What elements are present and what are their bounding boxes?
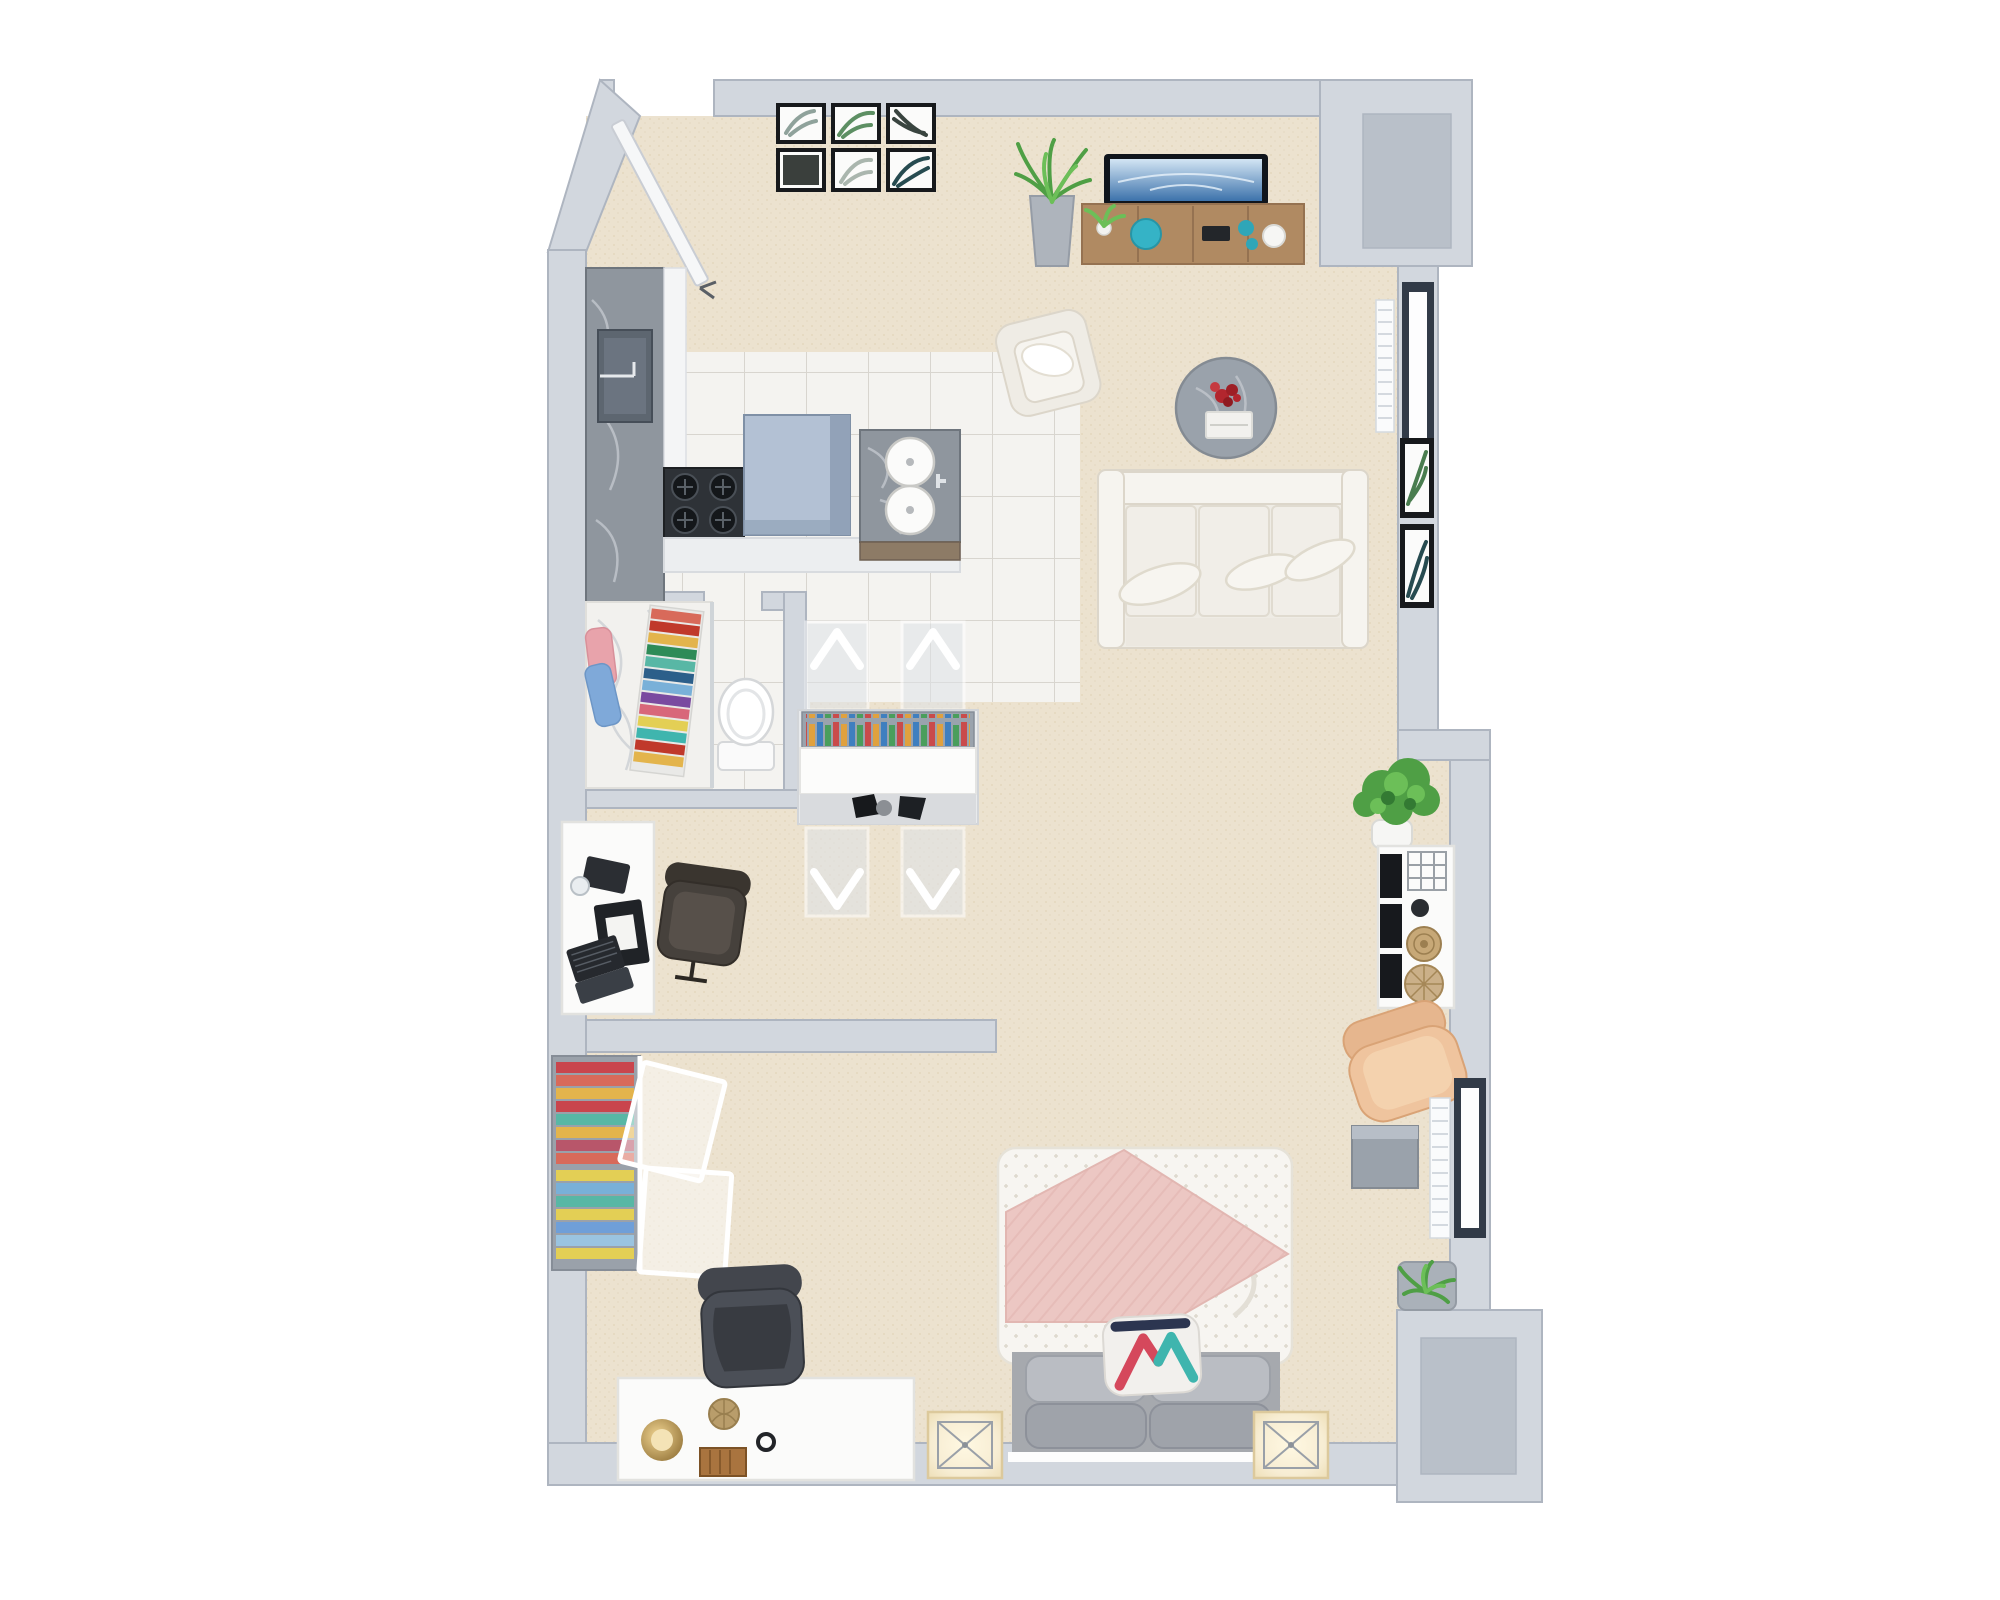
- kitchen-island[interactable]: [744, 415, 850, 535]
- dining-chair[interactable]: [902, 828, 964, 916]
- table-top: [800, 748, 976, 794]
- upper-window: [1402, 282, 1434, 452]
- glass-cup: [571, 877, 589, 895]
- dining-chair[interactable]: [902, 622, 964, 710]
- floor-plan: [0, 0, 2000, 1600]
- black-shelf-fronts: [1380, 854, 1402, 998]
- bed-baseboard: [1008, 1452, 1286, 1462]
- bedroom-desk[interactable]: [618, 1378, 914, 1480]
- bedroom-desk-chair[interactable]: [697, 1263, 807, 1388]
- cube-side-table[interactable]: [1352, 1126, 1418, 1188]
- teal-plate: [1131, 219, 1161, 249]
- gallery-frame: [886, 103, 936, 144]
- remote: [1202, 226, 1230, 241]
- rattan-tray: [1405, 965, 1443, 1003]
- floor-plan-canvas: [0, 0, 2000, 1600]
- kitchen-sink[interactable]: [598, 330, 652, 422]
- white-vase: [1263, 225, 1285, 247]
- sofa-back: [1100, 472, 1366, 504]
- upper-radiator: [1376, 300, 1394, 432]
- lower-window: [1454, 1078, 1486, 1238]
- accent-pillow: [1102, 1313, 1202, 1396]
- decor-plate: [876, 800, 892, 816]
- rattan-basket: [1407, 927, 1441, 961]
- dining-table[interactable]: [798, 710, 978, 824]
- gallery-frame: [886, 148, 936, 192]
- gallery-frame: [776, 103, 826, 144]
- closet-zone: [552, 1056, 732, 1278]
- wooden-box: [700, 1448, 746, 1476]
- gallery-frame: [831, 148, 881, 192]
- niche-bottom-right: [1397, 1310, 1542, 1502]
- office-desk[interactable]: [562, 822, 654, 1014]
- bedroom-divider-wall: [586, 1020, 996, 1052]
- dining-chair[interactable]: [806, 828, 868, 916]
- stove[interactable]: [664, 468, 744, 538]
- sideboard[interactable]: [1378, 846, 1454, 1008]
- closet-door[interactable]: [639, 1168, 732, 1278]
- sofa-arm-left: [1098, 470, 1124, 648]
- wall-plant-shelf[interactable]: [1398, 1262, 1456, 1310]
- gallery-frame: [831, 103, 881, 144]
- niche-top-right: [1320, 80, 1472, 266]
- dining-chair[interactable]: [806, 622, 868, 710]
- coffee-table[interactable]: [1176, 358, 1276, 458]
- black-disc: [1411, 899, 1429, 917]
- vanity-double-sink[interactable]: [860, 430, 960, 560]
- tv-console[interactable]: [1082, 204, 1304, 264]
- nightstand-right[interactable]: [1254, 1412, 1328, 1478]
- teal-vase: [1246, 238, 1258, 250]
- bathroom-wall-bottom: [586, 790, 806, 808]
- right-wall-step: [1398, 730, 1490, 760]
- tv[interactable]: [1104, 154, 1268, 206]
- sofa-front-edge: [1126, 618, 1340, 646]
- nightstand-left[interactable]: [928, 1412, 1002, 1478]
- bed[interactable]: [998, 1148, 1292, 1462]
- gallery-frame: [776, 148, 826, 192]
- toilet[interactable]: [718, 679, 774, 770]
- book-row: [806, 714, 970, 746]
- sofa[interactable]: [1098, 470, 1368, 648]
- lower-radiator: [1430, 1098, 1450, 1238]
- teal-vase: [1238, 220, 1254, 236]
- wicker-ball: [709, 1399, 739, 1429]
